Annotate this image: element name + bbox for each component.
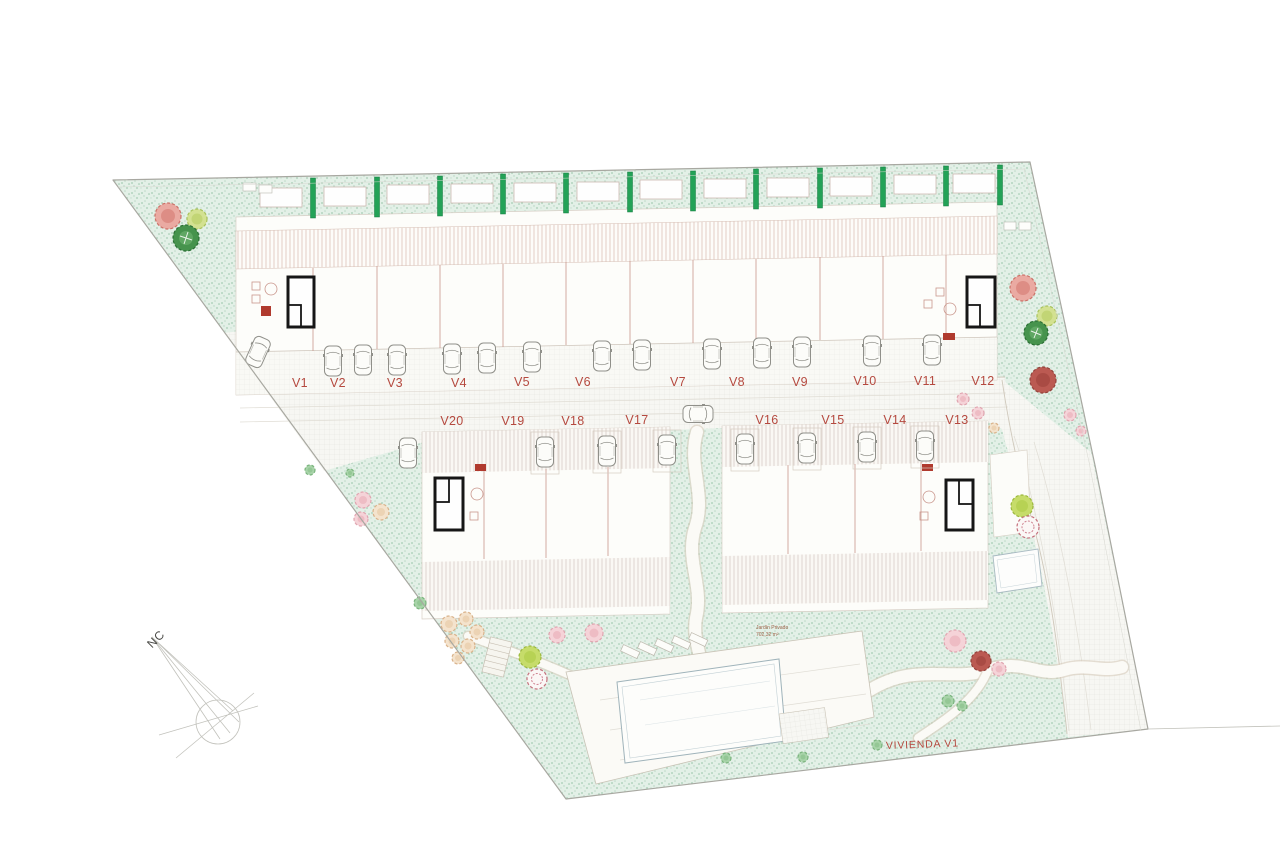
tree-icon bbox=[944, 630, 966, 652]
unit-label-v18: V18 bbox=[561, 414, 584, 428]
hedge bbox=[754, 169, 759, 209]
hedge bbox=[818, 168, 823, 208]
tree-icon bbox=[461, 639, 475, 653]
car-icon bbox=[535, 437, 555, 467]
tree-icon bbox=[459, 612, 473, 626]
car-icon bbox=[735, 434, 755, 464]
deck-patio-grid bbox=[779, 708, 829, 744]
kitchen-accent bbox=[261, 306, 271, 316]
car-icon bbox=[797, 433, 817, 463]
hedge bbox=[998, 165, 1003, 205]
hedge bbox=[691, 171, 696, 211]
unit-label-v12: V12 bbox=[971, 374, 994, 388]
car-icon bbox=[323, 346, 343, 376]
hedge bbox=[375, 177, 380, 217]
tree-icon bbox=[971, 651, 991, 671]
tree-icon bbox=[355, 492, 371, 508]
tree-icon bbox=[972, 407, 984, 419]
tree-icon bbox=[989, 423, 999, 433]
hedge bbox=[311, 178, 316, 218]
kitchen-accent bbox=[475, 464, 486, 471]
kitchen-accent bbox=[943, 333, 955, 340]
hedge bbox=[881, 167, 886, 207]
tree-icon bbox=[992, 662, 1006, 676]
hedge bbox=[438, 176, 443, 216]
car-icon bbox=[792, 337, 812, 367]
car-icon bbox=[922, 335, 942, 365]
kitchen-accent bbox=[922, 464, 933, 471]
tree-icon bbox=[1064, 409, 1076, 421]
shrub-icon bbox=[346, 469, 354, 477]
hedge bbox=[628, 172, 633, 212]
unit-label-v8: V8 bbox=[729, 375, 745, 389]
unit-label-v20: V20 bbox=[440, 414, 463, 428]
carport-band bbox=[722, 421, 988, 467]
shrub-icon bbox=[957, 701, 967, 711]
shrub-icon bbox=[872, 740, 882, 750]
unit-label-v19: V19 bbox=[501, 414, 524, 428]
car-icon bbox=[522, 342, 542, 372]
site-annotation: VIVIENDA V1 bbox=[886, 737, 959, 752]
tree-icon bbox=[585, 624, 603, 642]
north-compass: NC bbox=[144, 627, 258, 758]
unit-label-v11: V11 bbox=[914, 374, 936, 388]
unit-label-v1: V1 bbox=[292, 376, 308, 390]
unit-label-v3: V3 bbox=[387, 376, 403, 390]
private-pool bbox=[993, 549, 1042, 593]
car-icon bbox=[477, 343, 497, 373]
tree-icon bbox=[441, 616, 457, 632]
unit-label-v15: V15 bbox=[821, 413, 844, 427]
tree-icon bbox=[957, 393, 969, 405]
unit-label-v4: V4 bbox=[451, 376, 467, 390]
car-icon bbox=[862, 336, 882, 366]
compass-label: NC bbox=[144, 627, 168, 651]
unit-label-v7: V7 bbox=[670, 375, 686, 389]
sun-lounger bbox=[1019, 222, 1031, 230]
car-icon bbox=[752, 338, 772, 368]
garden-area-label-line2: 702,32 m² bbox=[756, 632, 779, 638]
hedge bbox=[501, 174, 506, 214]
car-icon bbox=[398, 438, 418, 468]
hedge bbox=[944, 166, 949, 206]
site-plan-drawing: NC V1 V2 V3 V4 V5 V6 V7 V8 V9 V10 V11 V1… bbox=[0, 0, 1280, 851]
car-icon bbox=[632, 340, 652, 370]
bottom-right-block bbox=[722, 421, 988, 613]
car-icon bbox=[442, 344, 462, 374]
unit-label-v2: V2 bbox=[330, 376, 346, 390]
car-icon bbox=[387, 345, 407, 375]
car-icon bbox=[702, 339, 722, 369]
car-icon bbox=[915, 431, 935, 461]
car-icon bbox=[353, 345, 373, 375]
tree-icon bbox=[1076, 426, 1086, 436]
tree-icon bbox=[155, 203, 181, 229]
tree-icon bbox=[373, 504, 389, 520]
unit-label-v14: V14 bbox=[883, 413, 906, 427]
tree-icon bbox=[1030, 367, 1056, 393]
shrub-icon bbox=[942, 695, 954, 707]
tree-icon bbox=[527, 669, 547, 689]
car-icon bbox=[597, 436, 617, 466]
unit-label-v17: V17 bbox=[625, 413, 648, 427]
tree-icon bbox=[1024, 321, 1048, 345]
tree-icon bbox=[1011, 495, 1033, 517]
car-icon bbox=[683, 404, 713, 424]
stair-core bbox=[967, 277, 995, 327]
unit-label-v5: V5 bbox=[514, 375, 530, 389]
unit-label-v9: V9 bbox=[792, 375, 808, 389]
unit-label-v16: V16 bbox=[755, 413, 778, 427]
tree-icon bbox=[173, 225, 199, 251]
shrub-icon bbox=[798, 752, 808, 762]
tree-icon bbox=[1010, 275, 1036, 301]
terrace-band bbox=[422, 557, 670, 611]
car-icon bbox=[657, 435, 677, 465]
tree-icon bbox=[470, 625, 484, 639]
garden-shed bbox=[259, 185, 272, 193]
sun-lounger bbox=[1004, 222, 1016, 230]
boundary-extension-line bbox=[1148, 726, 1280, 729]
shrub-icon bbox=[305, 465, 315, 475]
hedge bbox=[564, 173, 569, 213]
garden-area-label-line1: Jardín Privado bbox=[756, 625, 788, 631]
tree-icon bbox=[519, 646, 541, 668]
tree-icon bbox=[549, 627, 565, 643]
unit-label-v6: V6 bbox=[575, 375, 591, 389]
terrace-band bbox=[722, 551, 988, 605]
car-icon bbox=[857, 432, 877, 462]
unit-label-v13: V13 bbox=[945, 413, 968, 427]
car-icon bbox=[592, 341, 612, 371]
shrub-icon bbox=[721, 753, 731, 763]
unit-label-v10: V10 bbox=[853, 374, 876, 388]
tree-icon bbox=[1017, 516, 1039, 538]
